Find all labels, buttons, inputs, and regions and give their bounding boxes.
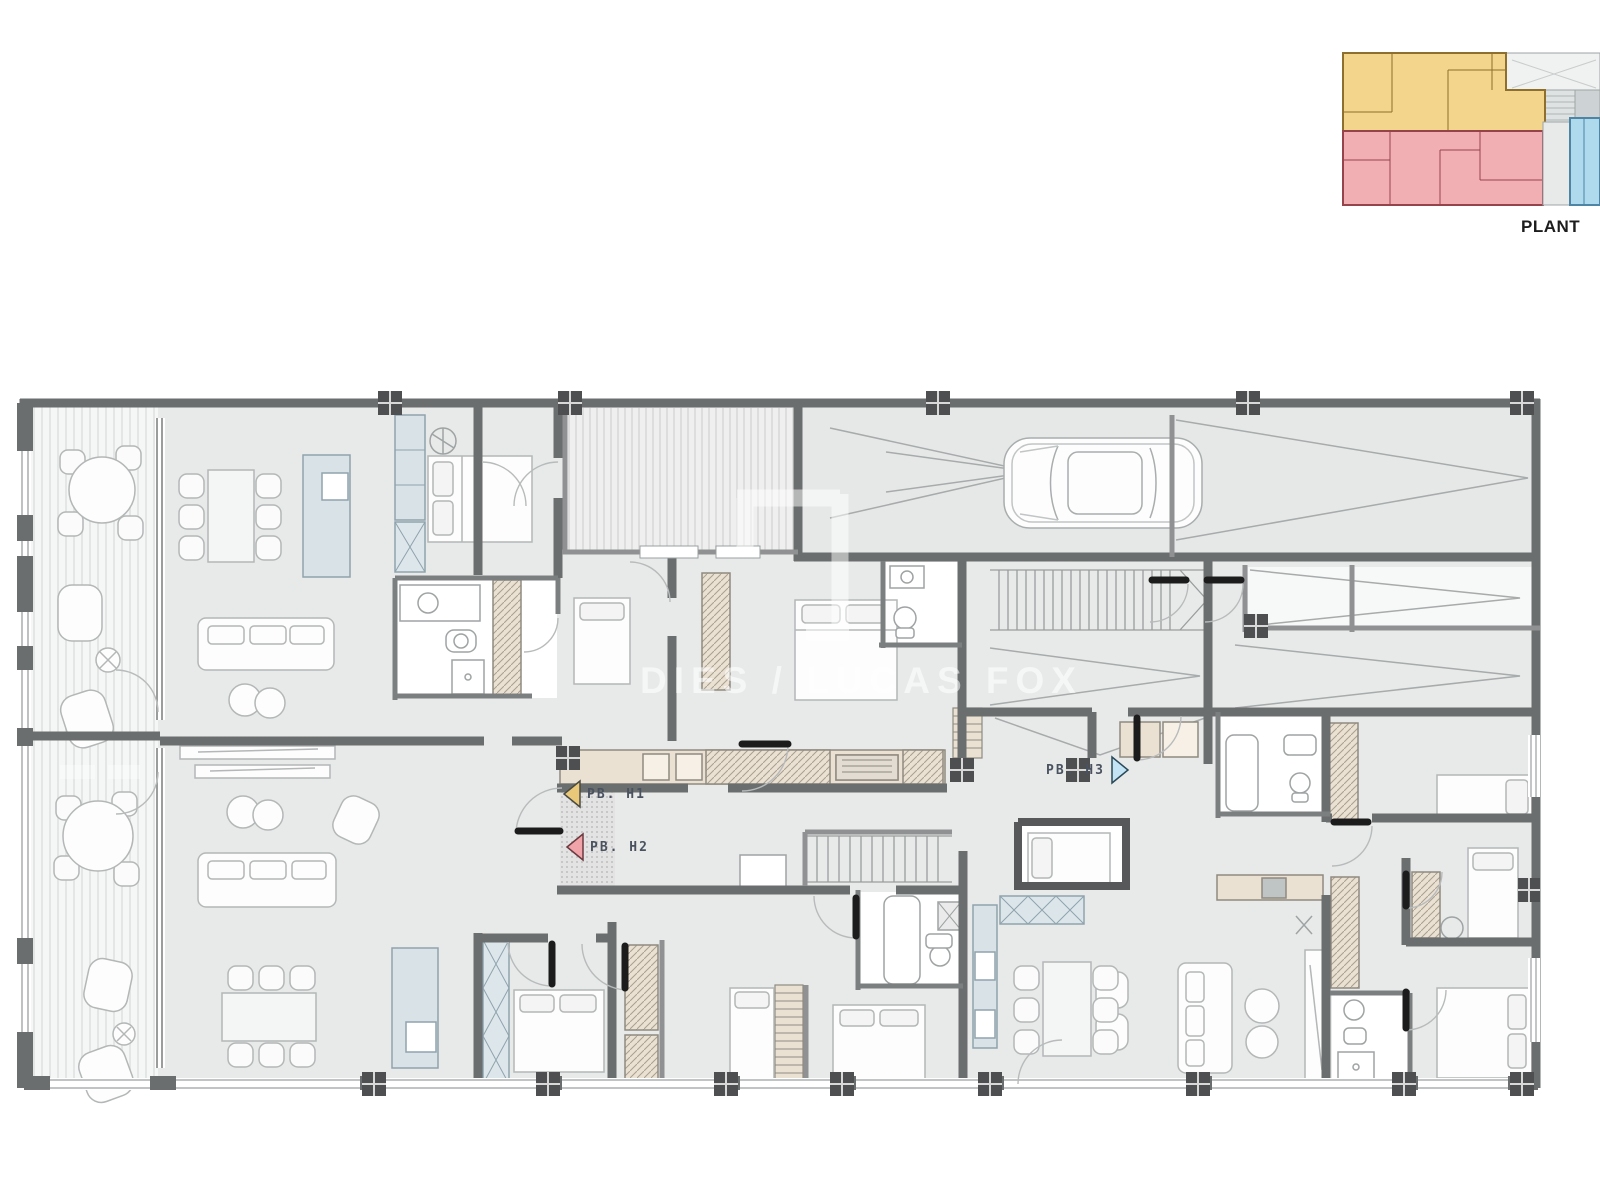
wardrobe: [493, 580, 521, 697]
wardrobe-blue-h1: [395, 415, 425, 572]
bed-h3-small: [1028, 833, 1110, 883]
pillar: [950, 758, 974, 782]
pillar: [362, 1072, 386, 1096]
sofa-h2: [198, 853, 336, 907]
keyplan-unit-h2: [1343, 131, 1543, 205]
keyplan-caption: PLANT: [1521, 217, 1600, 237]
pillar: [1186, 1072, 1210, 1096]
h2-bedroom-stair: [775, 985, 803, 1085]
x-table: [96, 648, 120, 672]
keyplan-unit-h3: [1570, 118, 1600, 205]
dining-table-h1: [179, 470, 281, 562]
bed-h2-dorm3: [833, 1005, 925, 1083]
tv-bench-h2: [195, 765, 330, 778]
unit-marker-h1: PB. H1: [562, 779, 646, 809]
pillar: [830, 1072, 854, 1096]
bed-h2-dorm2: [730, 988, 774, 1080]
side-table: [253, 800, 283, 830]
x-table: [113, 1023, 135, 1045]
bed-h3-dorm2: [1468, 848, 1518, 938]
shaft-h2-bath: [938, 902, 961, 930]
pillar: [1510, 1072, 1534, 1096]
wardrobe: [1327, 723, 1358, 820]
unit-marker-h3: PB. H3: [1046, 755, 1130, 785]
triangle-left-icon: [565, 832, 585, 862]
pillar: [556, 746, 580, 770]
dining-table-h3: [1014, 962, 1118, 1056]
pillar: [714, 1072, 738, 1096]
wardrobe: [625, 1035, 658, 1085]
unit-label-h2: PB. H2: [590, 840, 649, 855]
wardrobe-x-h2: [483, 940, 509, 1084]
side-table: [255, 688, 285, 718]
key-plan: [1343, 53, 1600, 205]
bed-h3-dorm3: [1437, 988, 1532, 1078]
pillar: [1510, 391, 1534, 415]
wardrobe: [1331, 877, 1359, 988]
wardrobe: [1412, 872, 1440, 938]
kitchen-counter-h3-mid: [1217, 875, 1323, 900]
pillar: [558, 391, 582, 415]
dining-table-h2: [222, 966, 316, 1067]
tv-bench-h1: [180, 746, 335, 759]
armchair: [58, 585, 102, 641]
floor-plan-drawing: [0, 0, 1600, 1200]
side-table: [1245, 989, 1279, 1023]
pillar: [926, 391, 950, 415]
sofa-h3: [1178, 963, 1232, 1073]
unit-label-h3: PB. H3: [1046, 763, 1105, 778]
watermark-text: DIES / LUCAS FOX: [640, 660, 1040, 702]
shaft-row-h3: [1000, 896, 1084, 924]
bed-h1-dorm2: [574, 598, 630, 684]
triangle-right-icon: [1110, 755, 1130, 785]
floorplan-page: DIES / LUCAS FOX PB. H1 PB. H2 PB. H3 PL…: [0, 0, 1600, 1200]
pillar: [1236, 391, 1260, 415]
pillar: [978, 1072, 1002, 1096]
kitchen-counter-h3-top: [1120, 722, 1198, 757]
bed-h3-dorm1: [1437, 775, 1532, 819]
pillar: [1392, 1072, 1416, 1096]
pillar: [1518, 878, 1540, 902]
wardrobe: [625, 945, 658, 1030]
pillar: [536, 1072, 560, 1096]
kitchen-island-h1: [303, 455, 350, 577]
unit-marker-h2: PB. H2: [565, 832, 649, 862]
cabinet-col-h3: [973, 905, 997, 1048]
pillar: [378, 391, 402, 415]
side-table: [1246, 1026, 1278, 1058]
pillar: [1244, 614, 1268, 638]
kitchen-island-h2: [392, 948, 438, 1068]
sofa-h1: [198, 618, 334, 670]
unit-label-h1: PB. H1: [587, 787, 646, 802]
triangle-left-icon: [562, 779, 582, 809]
bed-h2-dorm1: [514, 990, 604, 1072]
